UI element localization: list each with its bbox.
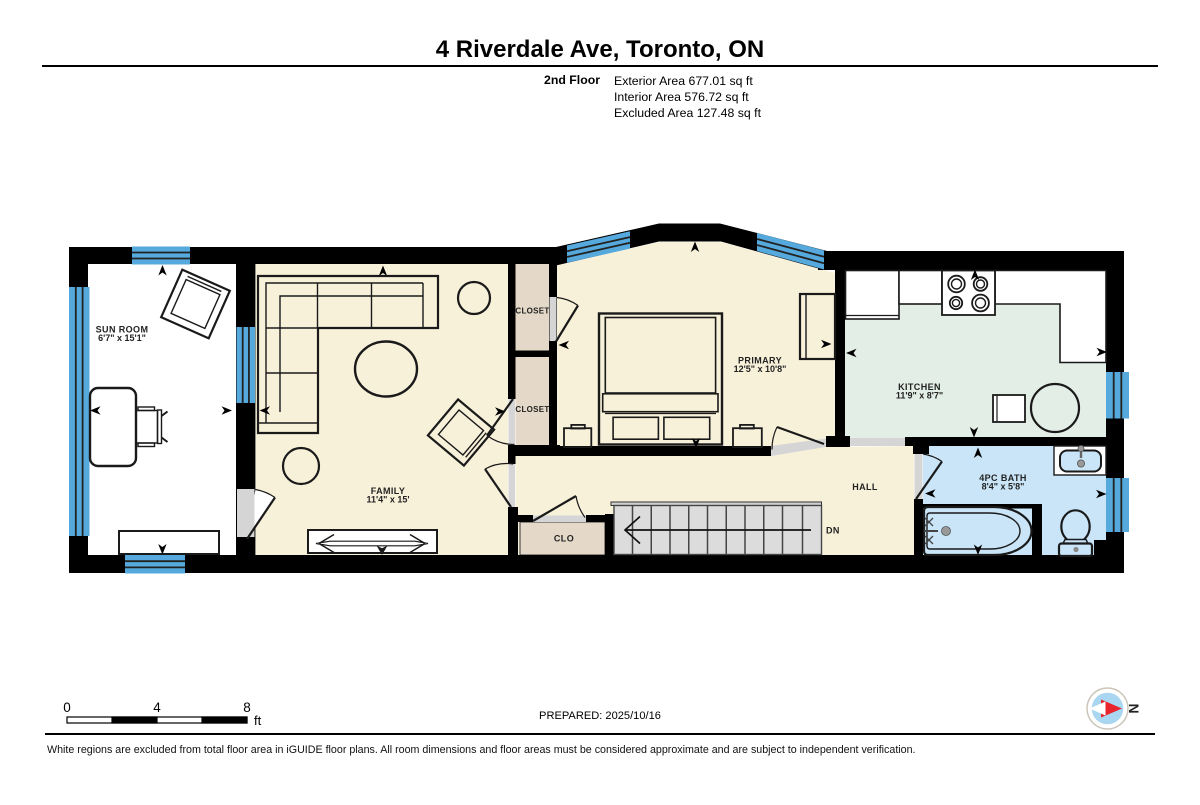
svg-text:CLO: CLO xyxy=(554,534,574,544)
svg-text:6'7" x 15'1": 6'7" x 15'1" xyxy=(98,333,146,343)
svg-text:11'4" x 15': 11'4" x 15' xyxy=(366,494,409,504)
svg-text:N: N xyxy=(1126,703,1142,713)
svg-text:CLOSET: CLOSET xyxy=(515,405,549,414)
svg-text:DN: DN xyxy=(826,526,840,536)
svg-text:CLOSET: CLOSET xyxy=(515,307,549,316)
svg-text:8'4" x 5'8": 8'4" x 5'8" xyxy=(982,481,1025,491)
svg-text:11'9" x 8'7": 11'9" x 8'7" xyxy=(896,390,943,400)
svg-text:12'5" x 10'8": 12'5" x 10'8" xyxy=(734,364,787,374)
svg-text:HALL: HALL xyxy=(852,482,878,492)
